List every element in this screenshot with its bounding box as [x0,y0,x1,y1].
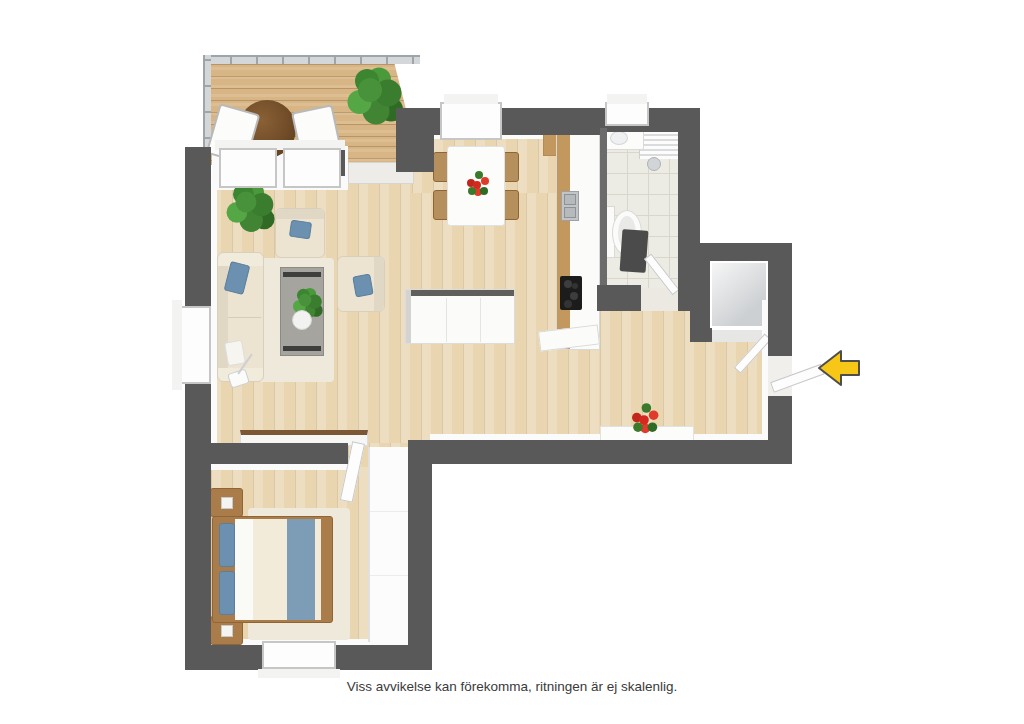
vase [292,310,312,330]
wall [428,440,792,464]
island-seam [446,298,447,342]
blue-pillow [352,274,373,298]
white-pillow [224,340,246,367]
table-flowers [299,294,312,307]
wall [185,147,211,670]
sink-basin [564,207,576,218]
shower-screen [639,129,678,159]
armchair-back [374,257,384,311]
wall [690,328,712,342]
table-centerpiece-flowers [473,181,481,189]
hall-red-flowers [639,415,649,425]
living-room-plant [236,192,257,213]
bed-sheet [235,519,253,620]
window-sill [607,94,647,104]
dining-table [447,146,505,226]
coffee-table-edge [283,346,321,351]
wall-face [211,464,348,470]
wall [396,108,434,172]
wardrobe-seam [370,575,409,576]
wardrobe-seam [370,511,409,512]
coffee-table [280,267,324,356]
kitchen-counter [556,128,600,350]
wall [408,440,432,670]
wall [768,261,792,356]
shower-head [647,157,661,171]
sink [561,191,579,221]
entrance-arrow-icon [816,348,862,388]
wall [597,285,641,311]
cooktop [560,276,582,310]
nightstand-lamp [221,625,233,637]
island-side [406,290,411,343]
storage-room-floor [708,259,770,330]
balcony-railing-top [204,55,420,64]
balcony-plant [358,78,382,102]
nightstand-lamp [221,497,233,509]
bed-pillow [219,523,235,567]
bathroom-window [605,102,649,126]
balcony-window [283,148,341,188]
bed-pillow [219,571,235,615]
wall [208,443,348,464]
kitchen-window [440,102,502,140]
sink-basin [564,194,576,205]
armchair [337,256,385,312]
bath-mat [620,229,649,273]
balcony-window [219,148,277,188]
living-room-window [179,306,211,384]
burner [564,280,572,288]
sofa [217,252,264,382]
wardrobe [368,447,409,642]
floor-plan-canvas: Viss avvikelse kan förekomma, ritningen … [0,0,1024,724]
bedroom-window [262,641,336,669]
window-sill [258,669,340,678]
bed-runner [287,519,315,620]
sofa-seam [228,317,261,318]
island-top-edge [406,290,514,296]
armchair [275,208,325,258]
nightstand [210,488,243,517]
coffee-table-edge [283,272,321,277]
window-sill [172,300,182,390]
blue-pillow [289,220,312,240]
basin-bowl [610,131,628,145]
wall [600,128,607,311]
island-seam [480,298,481,342]
window-sill [444,94,498,104]
kitchen-island [405,289,515,344]
double-bed [212,516,333,623]
caption-text: Viss avvikelse kan förekomma, ritningen … [0,679,1024,694]
armchair-back [276,209,324,219]
